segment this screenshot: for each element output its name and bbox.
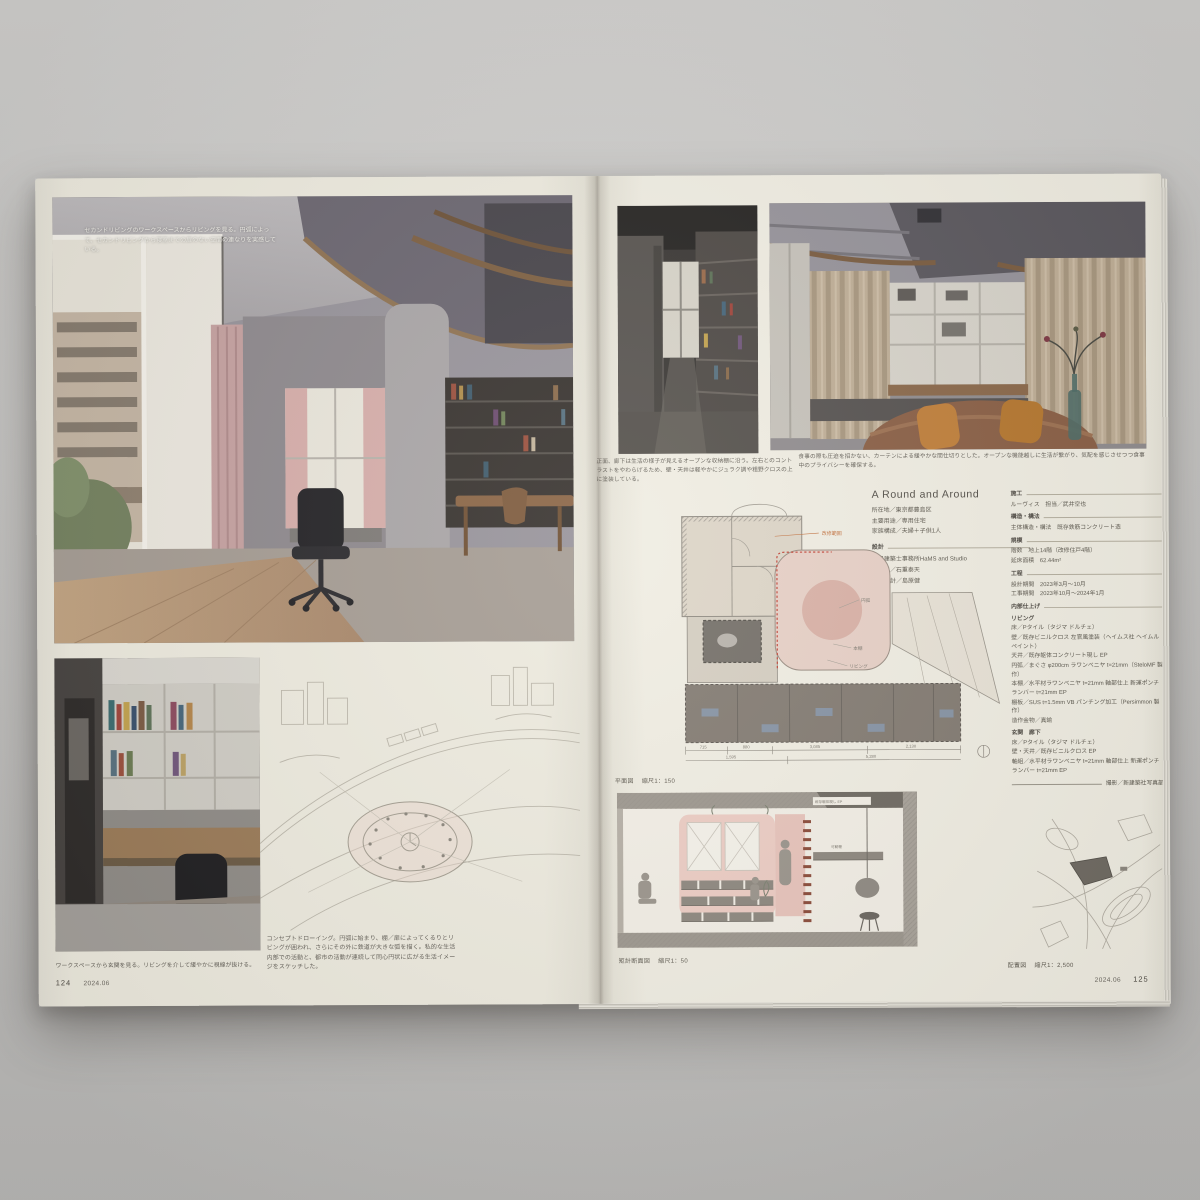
section-label-shelf: 可動棚 — [831, 844, 842, 849]
bottom-photo-caption: ワークスペースから玄関を見る。リビングを介して緩やかに視線が抜ける。 — [56, 960, 596, 971]
plan-label-shelf: 本棚 — [853, 645, 863, 652]
plan-dim: 880 — [743, 744, 751, 749]
section-label-ceiling: 既存躯体現し EP — [815, 799, 843, 804]
site-map — [1032, 811, 1163, 952]
living-caption: 食事の際も圧迫を招かない、カーテンによる緩やかな間仕切りとした。オープンな機能越… — [798, 452, 1150, 471]
spec-header-schedule: 工程 — [1011, 570, 1023, 579]
spec-line: ルーヴィス 担当／武井空也 — [1011, 500, 1163, 509]
spec-header-scale: 規模 — [1011, 537, 1023, 546]
plan-dim-total: 5,280 — [866, 754, 877, 759]
spec-line: 造作金物／真鍮 — [1012, 717, 1164, 726]
spec-line: 床／Pタイル（タジマ ドルチェ） — [1012, 738, 1164, 747]
spec-line: 軸組／水平材ラワンベニヤ t=21mm 軸部仕上 新運ポンチランバー t=21m… — [1012, 757, 1164, 775]
spec-line: 主体構造・構法 既存鉄筋コンクリート造 — [1011, 524, 1163, 533]
photo-living-dining — [769, 202, 1146, 451]
spec-line: 設計期間 2023年3月〜10月 — [1011, 580, 1163, 589]
spec-line: 壁／既存ビニルクロス 左官風塗装（ヘイムス社 ヘイムルペイント） — [1011, 633, 1163, 651]
magazine-spread: セカンドリビングのワークスペースからリビングを見る。円弧によって、セカンドリビン… — [35, 174, 1165, 1007]
spec-line: 階数 地上14階（改修住戸4階） — [1011, 547, 1163, 556]
plan-label: 平面図縮尺1：150 — [615, 776, 675, 785]
photo-workspace — [54, 657, 260, 951]
spec-line: 天井／既存躯体コンクリート現し EP — [1011, 652, 1163, 661]
page-number-right: 125 — [1133, 975, 1149, 984]
concept-sketch-art — [259, 641, 580, 932]
spec-line: 棚板／SUS t=1.5mm VB パンチング加工（Persimmon 製作） — [1011, 698, 1163, 716]
spec-line: 本棚／水平材ラワンベニヤ t=21mm 軸部仕上 新運ポンチランバー t=21m… — [1011, 680, 1163, 698]
spec-line: 工事期間 2023年10月〜2024年1月 — [1011, 590, 1163, 599]
issue-right: 2024.06 — [1095, 977, 1121, 984]
plan-dim-total: 1,595 — [726, 754, 737, 759]
footer-right: 2024.06 125 — [1095, 975, 1149, 984]
site-building-footprint — [1070, 857, 1112, 885]
photo-caption-overlay: セカンドリビングのワークスペースからリビングを見る。円弧によって、セカンドリビン… — [84, 226, 280, 256]
photo-workspace-art — [54, 657, 260, 951]
issue-left: 2024.06 — [83, 980, 109, 987]
floor-plan-art: 円弧 本棚 リビング — [627, 497, 1008, 767]
site-map-art — [1032, 811, 1163, 952]
photo-living-workspace: セカンドリビングのワークスペースからリビングを見る。円弧によって、セカンドリビン… — [52, 195, 574, 643]
photo-backdrop: セカンドリビングのワークスペースからリビングを見る。円弧によって、セカンドリビン… — [0, 0, 1200, 1200]
wood-chair-silhouette — [502, 487, 528, 524]
photo-corridor — [617, 205, 758, 454]
spec-header-finish: 内部仕上げ — [1011, 603, 1040, 612]
spec-subheader-living: リビング — [1011, 614, 1163, 623]
plan-dim: 715 — [700, 745, 708, 750]
spec-line: 壁・天井／既存ビニルクロス EP — [1012, 748, 1164, 757]
spec-subheader-entrance: 玄関 廊下 — [1012, 728, 1164, 737]
concept-sketch — [259, 641, 580, 932]
spec-line: 円弧／まぐさ φ200cm ラワンベニヤ t=21mm（SteloMF 製作） — [1011, 662, 1163, 680]
footer-left: 124 2024.06 — [56, 978, 110, 987]
plan-dim: 3,085 — [810, 744, 821, 749]
plan-annotation-orange: 改修範囲 — [822, 530, 842, 537]
spec-line: 延床面積 62.44m² — [1011, 557, 1163, 566]
page-right: 正面、廊下は生活の様子が見えるオープンな収納棚に沿う。左右とのコントラストをやわ… — [597, 174, 1165, 1004]
section-drawing: 既存躯体現し EP 可動棚 — [617, 792, 918, 948]
section-label: 矩計断面図縮尺1：50 — [619, 956, 688, 965]
spec-header-structure: 構造・構法 — [1011, 513, 1040, 522]
photo-corridor-art — [617, 205, 758, 454]
page-left: セカンドリビングのワークスペースからリビングを見る。円弧によって、セカンドリビン… — [35, 176, 601, 1006]
sitemap-label: 配置図縮尺1：2,500 — [1008, 960, 1074, 969]
photo-living-dining-art — [769, 202, 1146, 451]
page-stack-edge-bottom — [579, 1001, 1170, 1010]
spec-line: 床／Pタイル（タジマ ドルチェ） — [1011, 624, 1163, 633]
photo-credit: 撮影／新建築社写真部 — [1106, 780, 1164, 789]
plan-dim: 2,130 — [906, 744, 917, 749]
corridor-caption: 正面、廊下は生活の様子が見えるオープンな収納棚に沿う。左右とのコントラストをやわ… — [596, 457, 796, 484]
photo-living-workspace-art — [52, 195, 574, 643]
spec-column: 施工 ルーヴィス 担当／武井空也 構造・構法 主体構造・構法 既存鉄筋コンクリー… — [1011, 486, 1164, 790]
floor-plan: 円弧 本棚 リビング — [627, 497, 1008, 767]
section-drawing-art: 既存躯体現し EP 可動棚 — [617, 792, 918, 948]
page-number-left: 124 — [56, 978, 72, 987]
spec-header-construction: 施工 — [1011, 490, 1023, 499]
plan-label-arc: 円弧 — [861, 597, 871, 604]
